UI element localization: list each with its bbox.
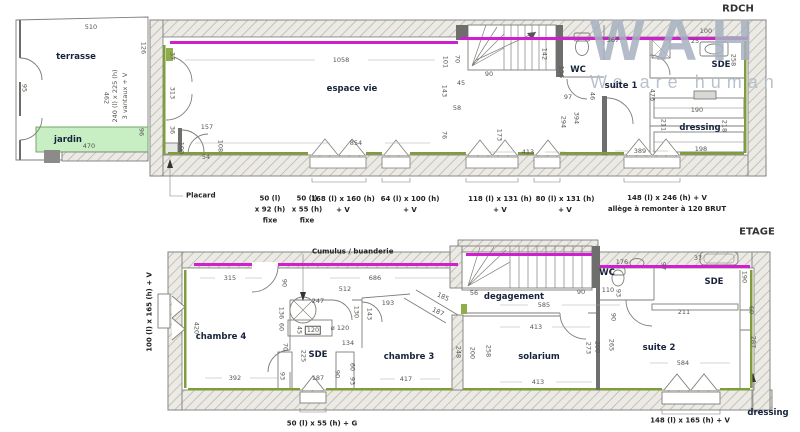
rdch-dim-label: 294 [560, 116, 567, 128]
etage-room-label: SDE [705, 278, 724, 287]
etage-dim-label: 258 [485, 345, 492, 357]
rdch-dim-label: 198 [695, 146, 707, 153]
etage-dim-label: 686 [369, 275, 381, 282]
rdch-dim-label: 97 [564, 94, 572, 101]
etage-dim-label: 225 [300, 350, 307, 362]
etage-dim-label: ø 120 [331, 325, 349, 332]
rdch-dim-label: 157 [201, 124, 213, 131]
etage-dim-label: 413 [530, 324, 542, 331]
rdch-dim-label: 70 [454, 55, 461, 63]
rdch-annotation: 168 (l) x 160 (h)+ V [311, 194, 375, 216]
rdch-room-label: dressing [679, 124, 720, 133]
etage-dim-label: 60 [278, 323, 285, 331]
rdch-dim-label: 100 [178, 142, 185, 154]
etage-room-label: degagement [484, 293, 544, 302]
rdch-dim-label: 95 [21, 84, 28, 92]
etage-room-label: chambre 3 [384, 353, 435, 362]
etage-dim-label: 56 [470, 290, 478, 297]
etage-dim-label: 585 [538, 302, 550, 309]
rdch-annotation: 64 (l) x 100 (h)+ V [381, 194, 440, 216]
rdch-dim-label: 211 [660, 119, 667, 131]
rdch-dim-label: 462 [103, 92, 110, 104]
rdch-room-label: jardin [54, 136, 82, 145]
etage-dim-label: 265 [608, 339, 615, 351]
rdch-dim-label: 394 [573, 112, 580, 124]
rdch-dim-label: 367 [607, 37, 619, 44]
etage-annotation: Cumulus / buanderie [312, 247, 393, 258]
etage-dim-label: 315 [224, 275, 236, 282]
etage-dim-label: 110 [602, 287, 614, 294]
rdch-annotation: Placard [186, 191, 216, 202]
etage-dim-label: 90 [577, 289, 585, 296]
rdch-dim-label: 96 [138, 128, 145, 136]
rdch-dim-label: 240 (l) x 225 (h) [112, 70, 119, 123]
etage-dim-label: 200 [469, 347, 476, 359]
rdch-dim-label: 3 vantaux + V [122, 73, 129, 120]
rdch-dim-label: 143 [441, 85, 448, 97]
etage-dim-label: 45 [296, 326, 303, 334]
etage-dim-label: 248 [455, 346, 462, 358]
etage-dim-label: 120 [305, 326, 321, 335]
rdch-dim-label: 54 [202, 154, 210, 161]
etage-dim-label: 200 [594, 341, 601, 353]
rdch-dim-label: 156 [558, 66, 565, 78]
rdch-room-label: suite 1 [605, 82, 638, 91]
rdch-dim-label: 25 [691, 38, 699, 45]
rdch-dim-label: 101 [442, 56, 449, 68]
rdch-dim-label: 258 [730, 54, 737, 66]
rdch-dim-label: 37 [169, 52, 176, 60]
rdch-dim-label: 470 [83, 143, 95, 150]
etage-dim-label: 211 [678, 309, 690, 316]
etage-dim-label: 193 [382, 300, 394, 307]
etage-dim-label: 70 [282, 343, 289, 351]
rdch-dim-label: 854 [350, 140, 362, 147]
rdch-dim-label: 190 [691, 107, 703, 114]
etage-room-label: dressing [747, 409, 788, 418]
etage-room-label: SDE [309, 351, 328, 360]
rdch-dim-label: 36 [169, 126, 176, 134]
rdch-room-label: SDE [712, 61, 731, 70]
floorplan-page: WAH We are human RDCH ETAGE 510126462240… [0, 0, 800, 432]
rdch-dim-label: 173 [496, 129, 503, 141]
etage-dim-label: 417 [400, 376, 412, 383]
etage-dim-label: 90 [610, 313, 617, 321]
etage-dim-label: 247 [312, 298, 324, 305]
rdch-annotation: 148 (l) x 246 (h) + Vallège à remonter à… [608, 193, 726, 215]
rdch-dim-label: 46 [589, 92, 596, 100]
etage-dim-label: 392 [229, 375, 241, 382]
etage-dim-label: 93 [349, 377, 356, 385]
etage-room-label: solarium [518, 353, 560, 362]
rdch-dim-label: 510 [85, 24, 97, 31]
rdch-dim-label: 100 [700, 28, 712, 35]
rdch-dim-label: 389 [634, 148, 646, 155]
rdch-room-label: WC [570, 66, 586, 75]
etage-annotation: 148 (l) x 165 (h) + V [650, 416, 730, 427]
etage-dim-label: 60 [349, 363, 356, 371]
etage-dim-label: 134 [342, 340, 354, 347]
rdch-dim-label: 90 [485, 71, 493, 78]
etage-dim-label: 97 [660, 262, 667, 270]
rdch-dim-label: 58 [453, 105, 461, 112]
etage-dim-label: 93 [615, 289, 622, 297]
rdch-annotation: 118 (l) x 131 (h)+ V [468, 194, 532, 216]
rdch-room-label: espace vie [327, 85, 378, 94]
rdch-annotation: 80 (l) x 131 (h)+ V [536, 194, 595, 216]
etage-dim-label: 130 [353, 306, 360, 318]
rdch-annotation: 50 (l)x 92 (h)fixe [255, 194, 286, 227]
rdch-dim-label: 313 [169, 87, 176, 99]
etage-dim-label: 37 [694, 255, 702, 262]
etage-dim-label: 60 [748, 306, 755, 314]
etage-room-label: suite 2 [643, 344, 676, 353]
etage-dim-label: 187 [431, 306, 445, 317]
etage-dim-label: 185 [436, 291, 450, 302]
etage-room-label: chambre 4 [196, 333, 247, 342]
rdch-dim-label: 476 [649, 89, 656, 101]
etage-dim-label: 287 [750, 336, 757, 348]
etage-annotation: 100 (l) x 165 (h) + V [145, 272, 156, 352]
etage-dim-label: 90 [281, 279, 288, 287]
etage-dim-label: 273 [585, 342, 592, 354]
etage-dim-label: 413 [532, 379, 544, 386]
etage-dim-label: 176 [616, 259, 628, 266]
rdch-dim-label: 126 [140, 42, 147, 54]
etage-dim-label: 190 [741, 271, 748, 283]
etage-dim-label: 90 [334, 370, 341, 378]
floor-label-etage: ETAGE [739, 227, 775, 238]
rdch-room-label: terrasse [56, 53, 96, 62]
floor-label-rdch: RDCH [722, 4, 754, 15]
etage-dim-label: 143 [366, 308, 373, 320]
label-layer: RDCH ETAGE 510126462240 (l) x 225 (h)3 v… [0, 0, 800, 432]
rdch-dim-label: 76 [441, 131, 448, 139]
etage-annotation: 50 (l) x 55 (h) + G [287, 419, 357, 430]
rdch-dim-label: 413 [522, 149, 534, 156]
etage-dim-label: 512 [339, 286, 351, 293]
rdch-dim-label: 108 [217, 140, 224, 152]
rdch-dim-label: 1058 [333, 57, 350, 64]
etage-room-label: WC [599, 269, 615, 278]
etage-dim-label: 584 [677, 360, 689, 367]
rdch-dim-label: 45 [457, 80, 465, 87]
etage-dim-label: 136 [278, 307, 285, 319]
etage-dim-label: 93 [279, 372, 286, 380]
rdch-dim-label: 142 [541, 48, 548, 60]
etage-dim-label: 187 [312, 375, 324, 382]
rdch-dim-label: 218 [721, 120, 728, 132]
